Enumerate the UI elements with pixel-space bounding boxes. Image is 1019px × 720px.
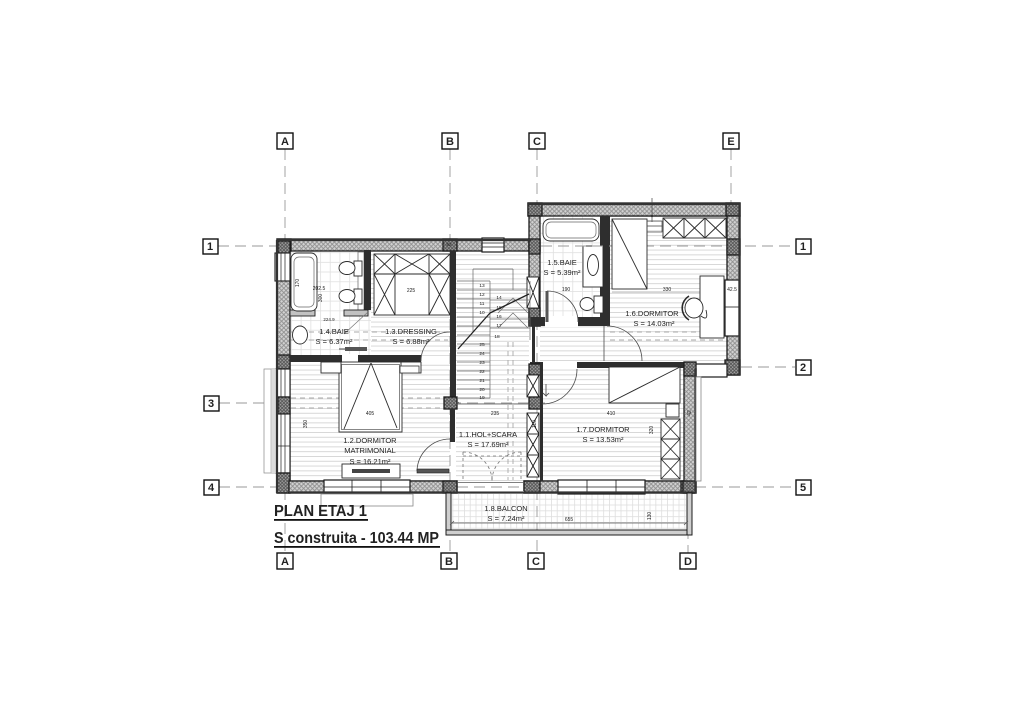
svg-text:1.7.DORMITOR: 1.7.DORMITOR	[576, 425, 630, 434]
svg-text:20: 20	[479, 387, 485, 393]
svg-text:42: 42	[687, 410, 693, 416]
svg-text:1: 1	[800, 241, 806, 253]
svg-text:224.9: 224.9	[323, 317, 335, 322]
svg-text:15: 15	[496, 305, 502, 311]
svg-text:225: 225	[407, 288, 416, 294]
svg-text:202.5: 202.5	[313, 286, 326, 292]
svg-text:S = 14.03m²: S = 14.03m²	[633, 319, 675, 328]
svg-text:S = 16.21m²: S = 16.21m²	[349, 457, 391, 466]
svg-text:S = 6.37m²: S = 6.37m²	[316, 337, 353, 346]
svg-text:190: 190	[562, 287, 571, 293]
svg-text:E: E	[727, 136, 734, 148]
svg-text:MATRIMONIAL: MATRIMONIAL	[344, 446, 396, 455]
svg-text:300: 300	[318, 294, 324, 303]
svg-text:1.4.BAIE: 1.4.BAIE	[319, 327, 349, 336]
svg-text:350: 350	[303, 420, 309, 429]
svg-text:24: 24	[479, 351, 485, 357]
svg-text:10: 10	[479, 310, 485, 316]
svg-text:D: D	[684, 556, 692, 568]
svg-text:S = 17.69m²: S = 17.69m²	[467, 440, 509, 449]
svg-text:11: 11	[480, 301, 485, 307]
svg-text:405: 405	[366, 411, 375, 417]
svg-text:25: 25	[479, 342, 485, 348]
svg-text:1.3.DRESSING: 1.3.DRESSING	[385, 327, 437, 336]
svg-text:330: 330	[663, 287, 672, 293]
svg-text:1.2.DORMITOR: 1.2.DORMITOR	[343, 436, 397, 445]
svg-text:2: 2	[800, 362, 806, 374]
svg-text:1.1.HOL+SCARA: 1.1.HOL+SCARA	[459, 430, 517, 439]
svg-text:S = 6.88m²: S = 6.88m²	[393, 337, 430, 346]
svg-text:1.8.BALCON: 1.8.BALCON	[484, 504, 527, 513]
svg-text:B: B	[446, 136, 454, 148]
svg-text:655: 655	[565, 517, 574, 523]
svg-text:PLAN ETAJ 1: PLAN ETAJ 1	[274, 503, 367, 520]
svg-text:16: 16	[496, 314, 502, 320]
svg-text:21: 21	[479, 378, 485, 384]
svg-text:130: 130	[647, 512, 653, 521]
svg-text:235: 235	[491, 411, 500, 417]
svg-text:13: 13	[479, 283, 485, 289]
svg-text:5: 5	[800, 482, 806, 494]
svg-text:C: C	[532, 556, 540, 568]
svg-text:B: B	[445, 556, 453, 568]
svg-text:42.5: 42.5	[727, 287, 737, 293]
svg-text:3: 3	[208, 398, 214, 410]
svg-text:110: 110	[532, 420, 538, 428]
svg-text:170: 170	[295, 279, 301, 288]
svg-text:18: 18	[494, 334, 500, 340]
svg-text:1.6.DORMITOR: 1.6.DORMITOR	[625, 309, 679, 318]
svg-text:1: 1	[207, 241, 213, 253]
svg-text:92: 92	[446, 242, 452, 247]
svg-text:12: 12	[479, 292, 485, 298]
svg-text:A: A	[281, 556, 289, 568]
svg-text:S = 7.24m²: S = 7.24m²	[488, 514, 525, 523]
svg-text:22: 22	[479, 369, 485, 375]
svg-text:S construita - 103.44 MP: S construita - 103.44 MP	[274, 530, 439, 547]
svg-text:320: 320	[649, 426, 655, 435]
svg-text:17: 17	[496, 323, 502, 329]
svg-text:19: 19	[479, 395, 485, 401]
svg-text:S = 13.53m²: S = 13.53m²	[582, 435, 624, 444]
svg-text:14: 14	[496, 295, 502, 301]
svg-text:4: 4	[208, 482, 215, 494]
svg-text:C: C	[533, 136, 541, 148]
svg-text:1.5.BAIE: 1.5.BAIE	[547, 258, 577, 267]
svg-text:A: A	[281, 136, 289, 148]
svg-text:23: 23	[479, 360, 485, 366]
svg-text:S = 5.39m²: S = 5.39m²	[544, 268, 581, 277]
svg-text:410: 410	[607, 411, 616, 417]
